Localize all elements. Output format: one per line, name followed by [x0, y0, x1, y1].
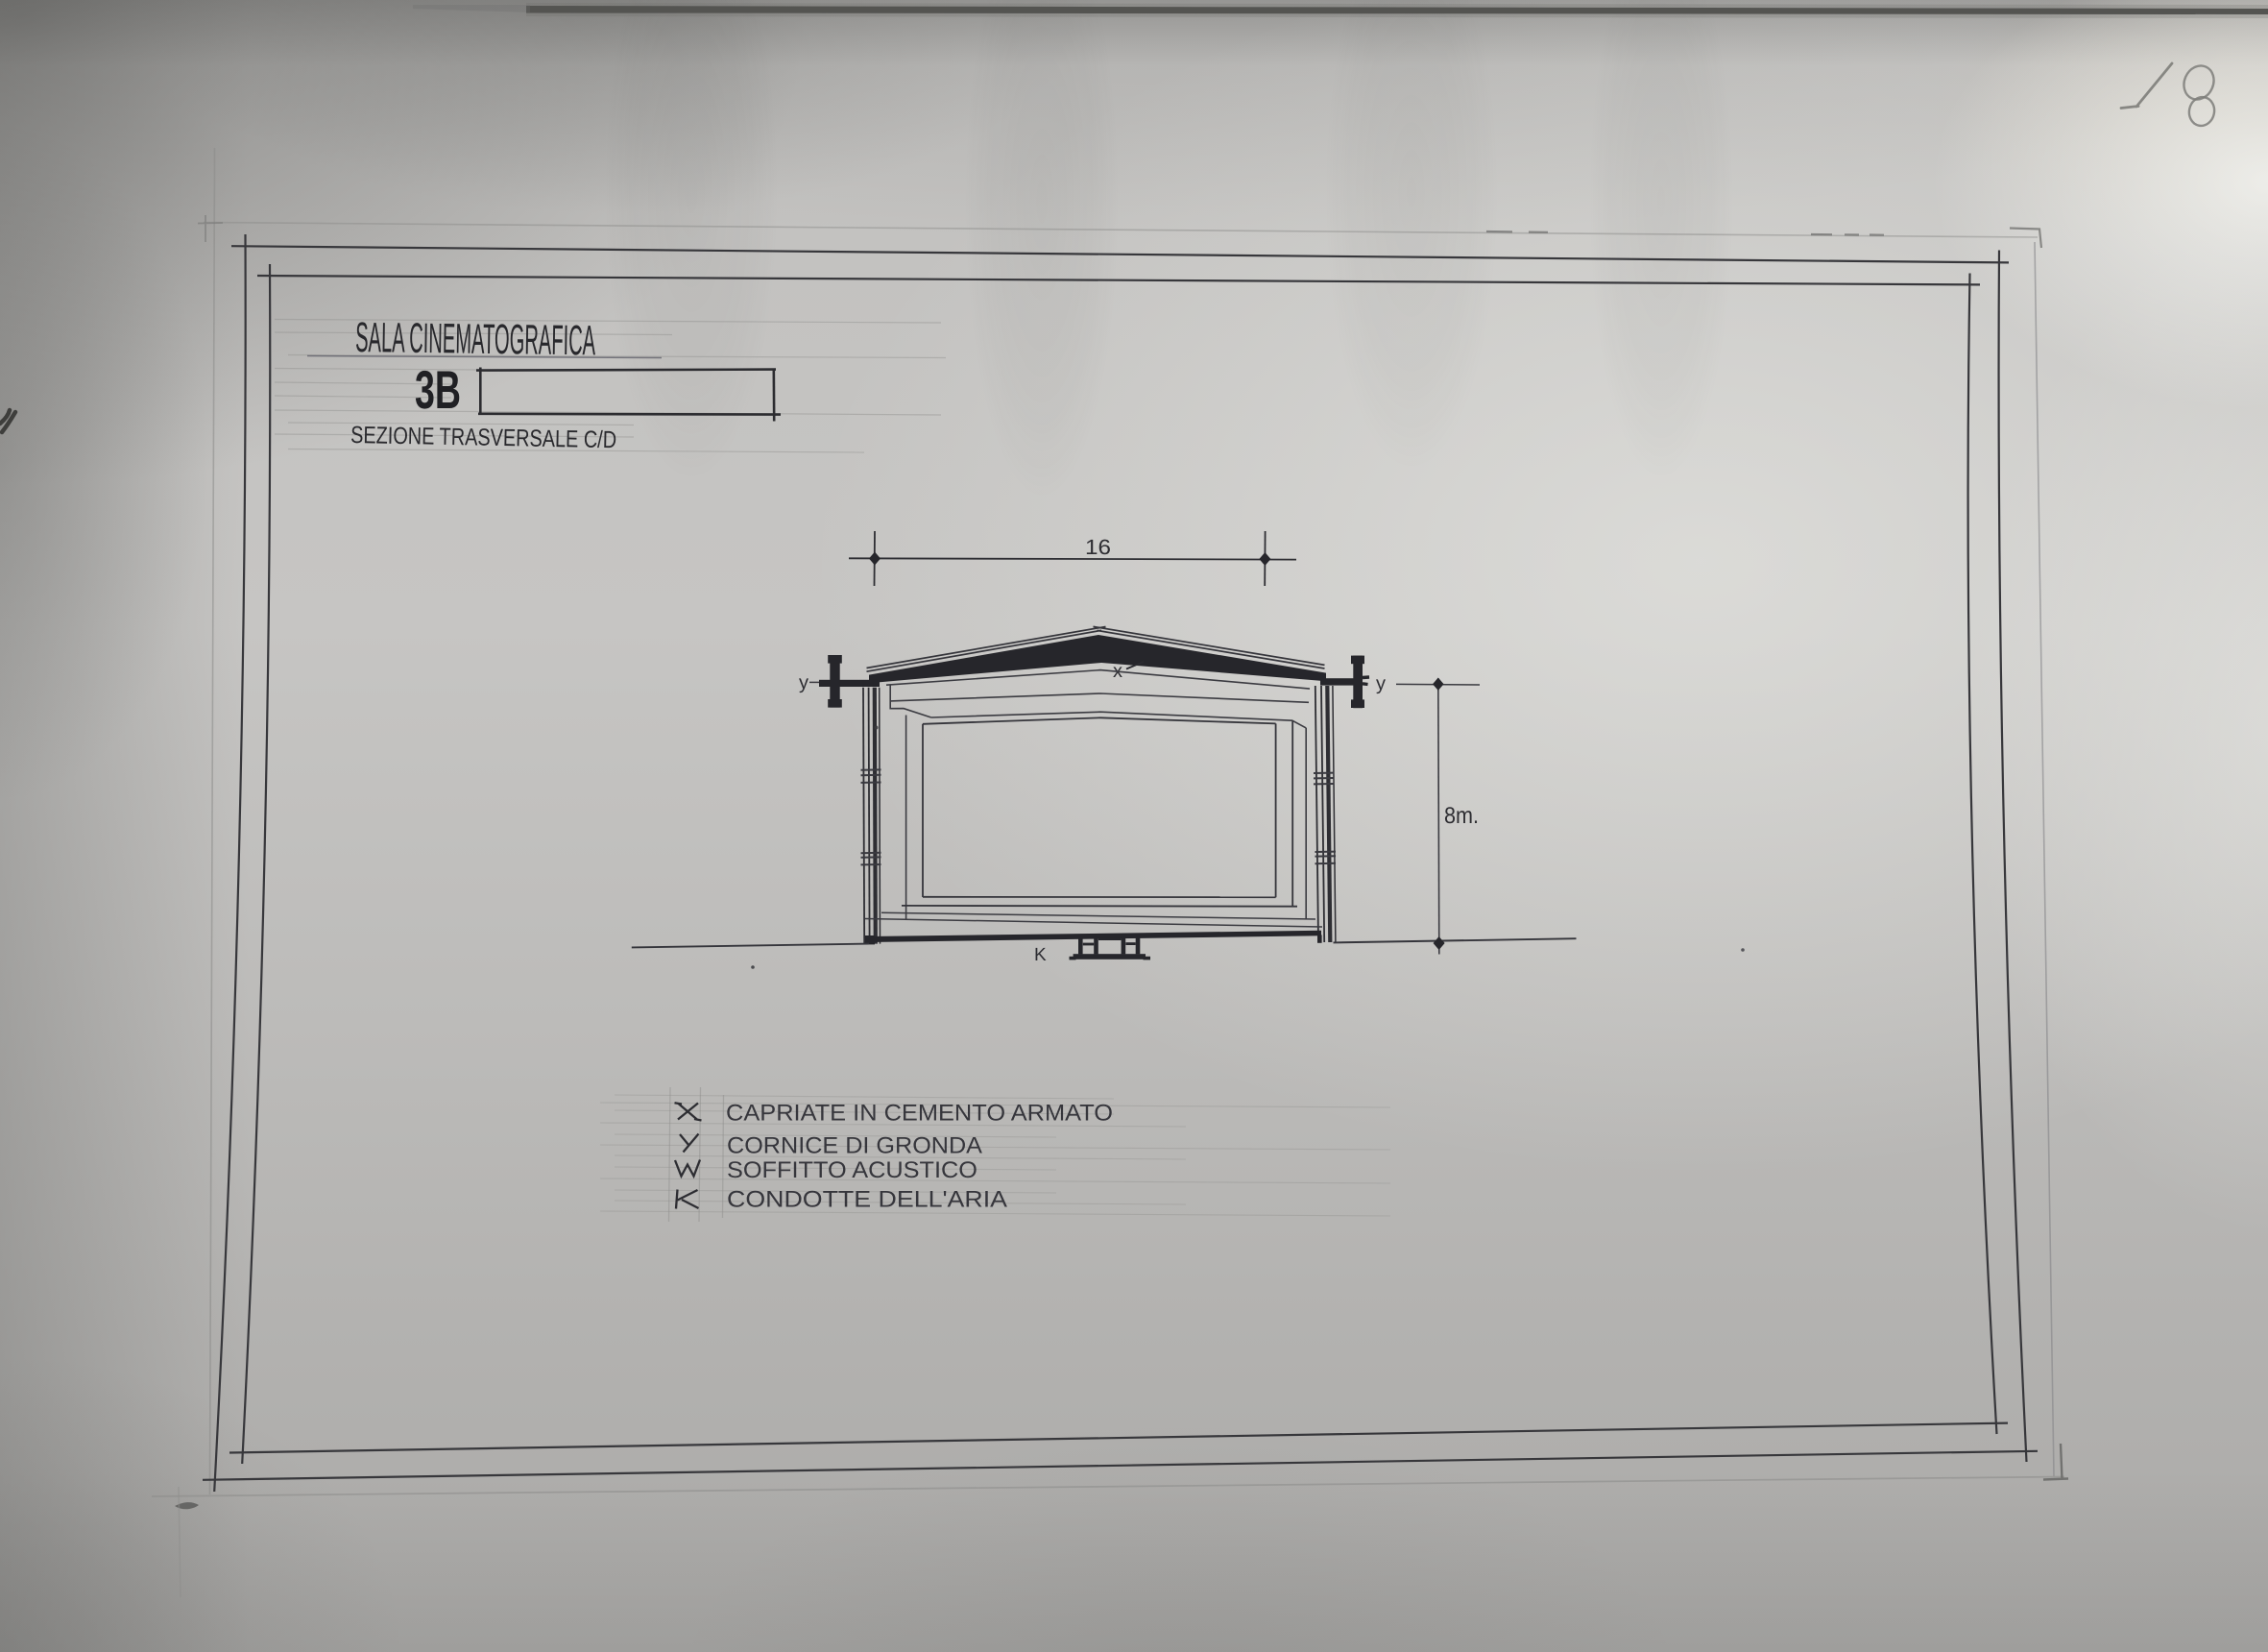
- svg-text:CONDOTTE DELL'ARIA: CONDOTTE DELL'ARIA: [727, 1187, 1007, 1213]
- svg-text:y: y: [1376, 673, 1386, 694]
- svg-text:8m.: 8m.: [1444, 803, 1479, 829]
- svg-text:16: 16: [1085, 535, 1111, 559]
- svg-text:SEZIONE TRASVERSALE C/D: SEZIONE TRASVERSALE C/D: [350, 422, 616, 453]
- svg-text:CORNICE DI GRONDA: CORNICE DI GRONDA: [727, 1133, 982, 1159]
- svg-text:y: y: [799, 672, 808, 693]
- svg-text:K: K: [1034, 945, 1047, 965]
- svg-text:SOFFITTO ACUSTICO: SOFFITTO ACUSTICO: [727, 1157, 977, 1183]
- svg-text:3B: 3B: [415, 359, 461, 420]
- svg-text:CAPRIATE IN CEMENTO ARMATO: CAPRIATE IN CEMENTO ARMATO: [726, 1101, 1113, 1127]
